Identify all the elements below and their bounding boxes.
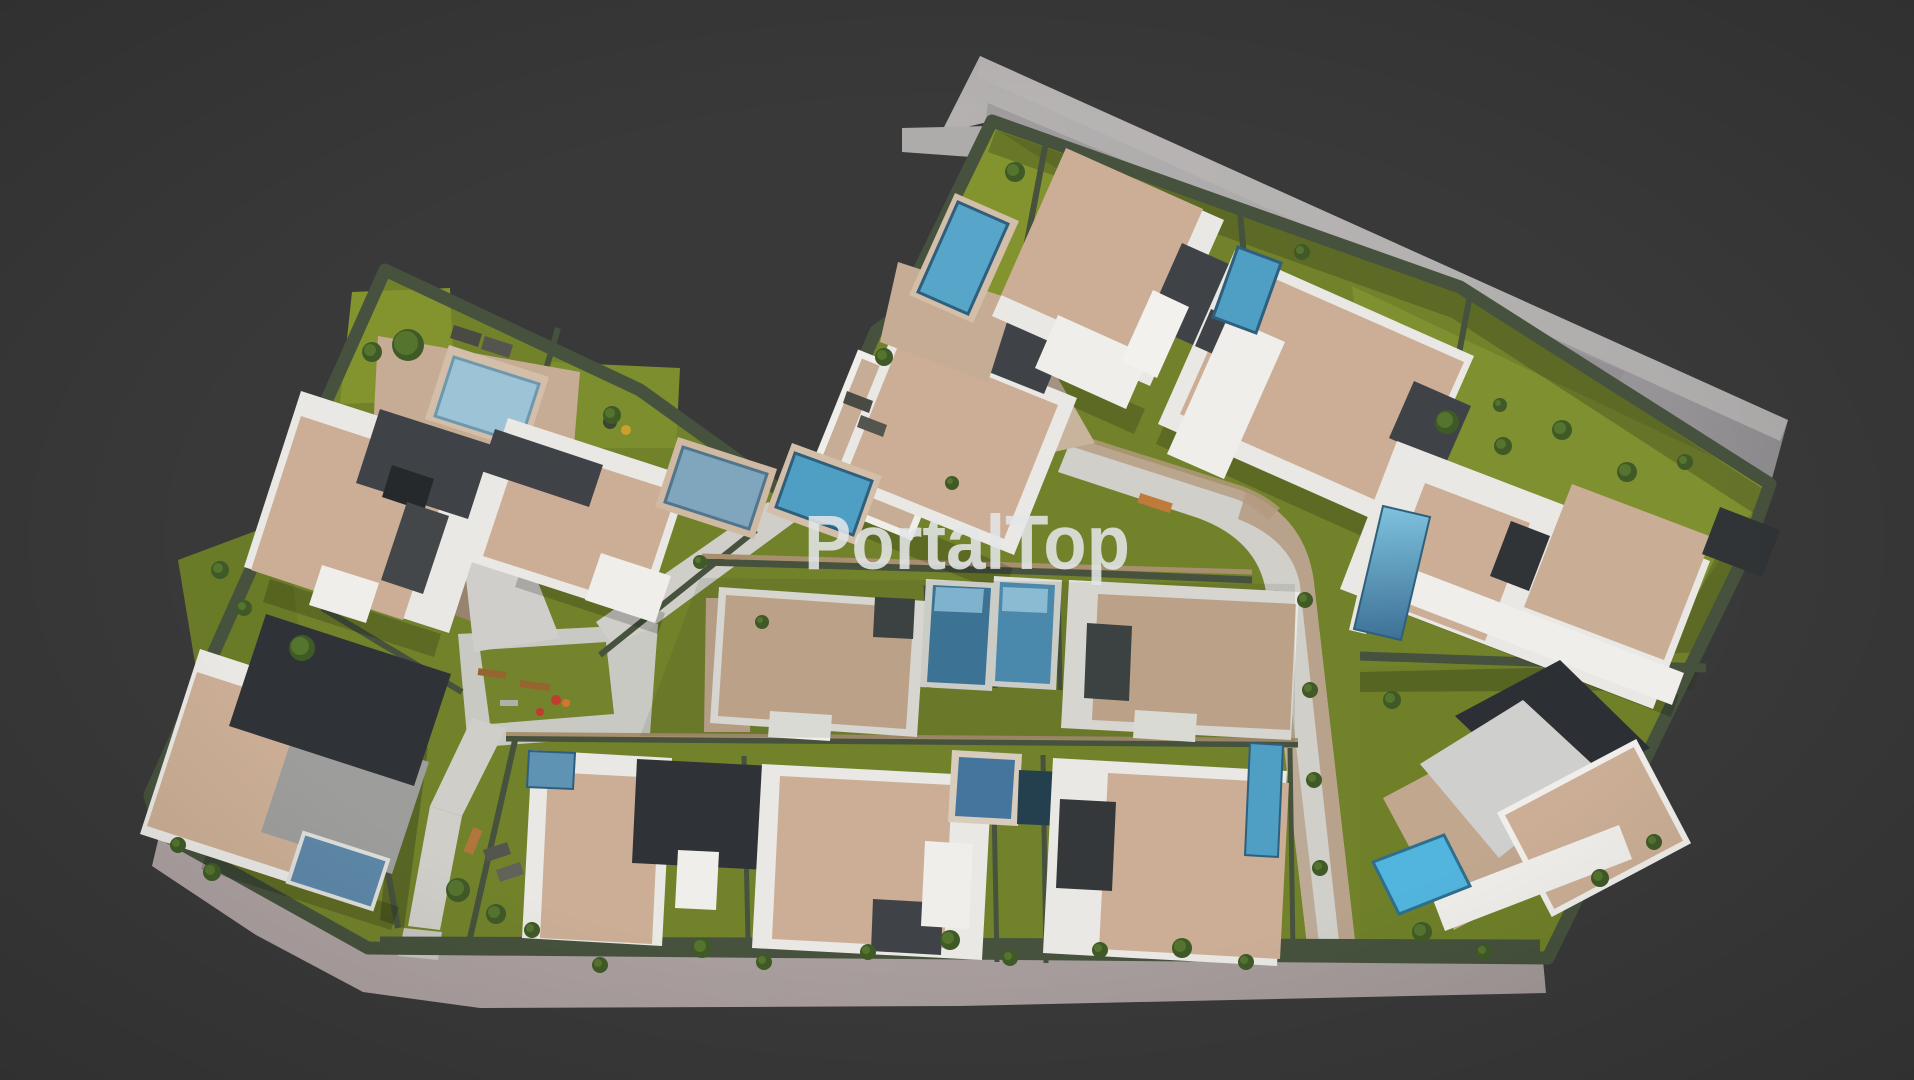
svg-text:PortalTop: PortalTop — [804, 500, 1130, 586]
